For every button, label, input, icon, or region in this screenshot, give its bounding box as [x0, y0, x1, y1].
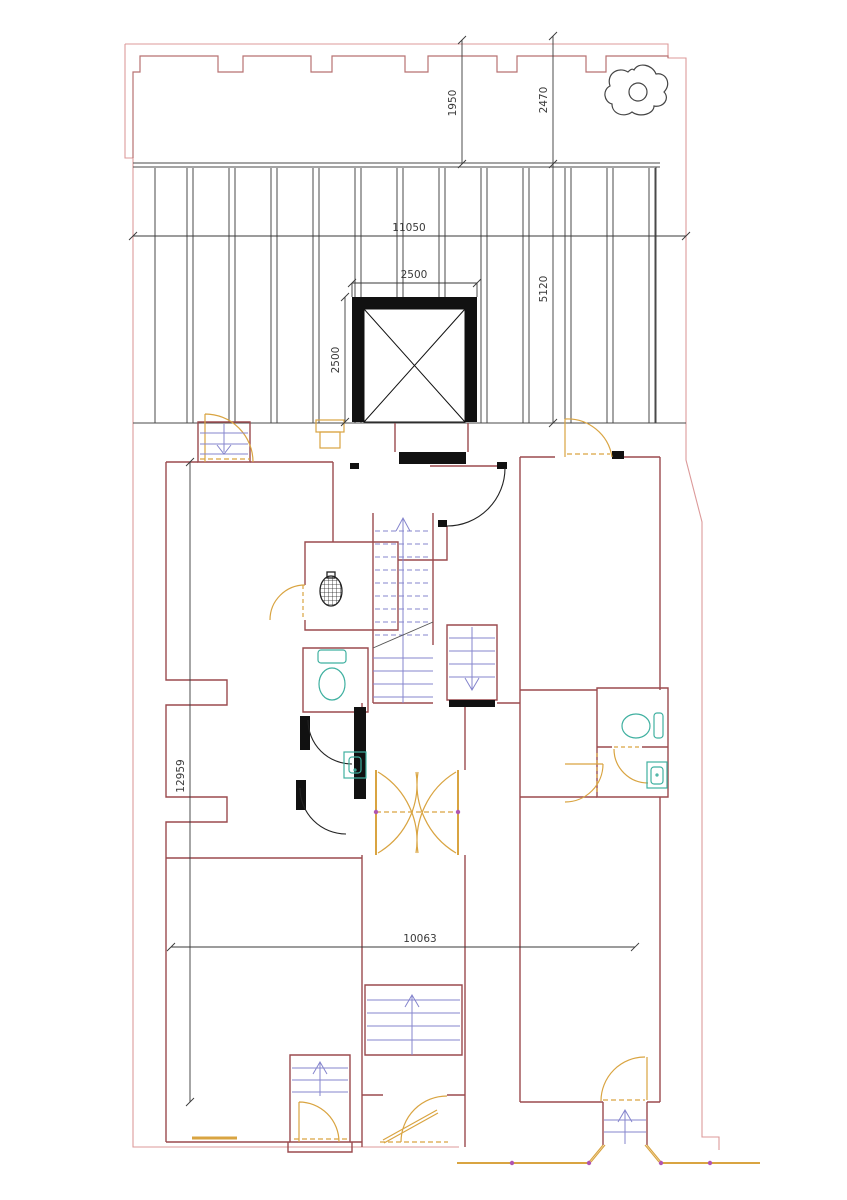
door-right-room — [565, 419, 612, 457]
shaft-wall-right — [465, 309, 477, 422]
dim-label-1950: 1950 — [447, 90, 459, 117]
dim-label-10063: 10063 — [403, 933, 436, 945]
shaft-wall-left — [352, 309, 364, 422]
wc-tank-icon — [654, 713, 663, 738]
door-bath-right — [614, 749, 648, 783]
door-arc — [447, 468, 505, 526]
door-bath1 — [270, 585, 305, 620]
wc-tank-icon — [318, 650, 346, 663]
dim-label-12959: 12959 — [175, 759, 187, 792]
dim-label-2470: 2470 — [538, 87, 550, 114]
dim-label-5120: 5120 — [538, 276, 550, 303]
door-arc — [308, 720, 352, 764]
drawing-sheet: 1950 2470 5120 11050 2500 2500 12959 100… — [0, 0, 847, 1200]
wc-bowl-icon — [622, 714, 650, 738]
wc-hatched-icon — [320, 576, 342, 606]
tree-icon — [605, 65, 668, 115]
wc-bowl-icon — [319, 668, 345, 700]
door-porch — [601, 1057, 647, 1101]
shaft-wall-top — [352, 297, 477, 309]
stair-bottom-center — [367, 995, 460, 1055]
elevator-shaft — [352, 297, 477, 422]
floor-plan-canvas: 1950 2470 5120 11050 2500 2500 12959 100… — [0, 0, 847, 1200]
porch-splay — [589, 1145, 661, 1162]
hinge-markers — [374, 810, 712, 1165]
dim-label-11050: 11050 — [392, 222, 425, 234]
dim-label-2500-w: 2500 — [401, 269, 428, 281]
stair-right-flight — [449, 627, 495, 690]
entrance-door — [383, 1096, 447, 1143]
stair-top-left — [200, 424, 248, 454]
crenellated-parapet — [133, 56, 668, 158]
stair-porch — [604, 1110, 646, 1144]
stairs — [200, 424, 646, 1144]
stair-bottom-left — [292, 1062, 348, 1096]
doors — [192, 414, 760, 1163]
dim-label-2500-d: 2500 — [330, 347, 342, 374]
door-arc — [300, 788, 346, 834]
door-bottom-left-stair — [299, 1102, 339, 1142]
